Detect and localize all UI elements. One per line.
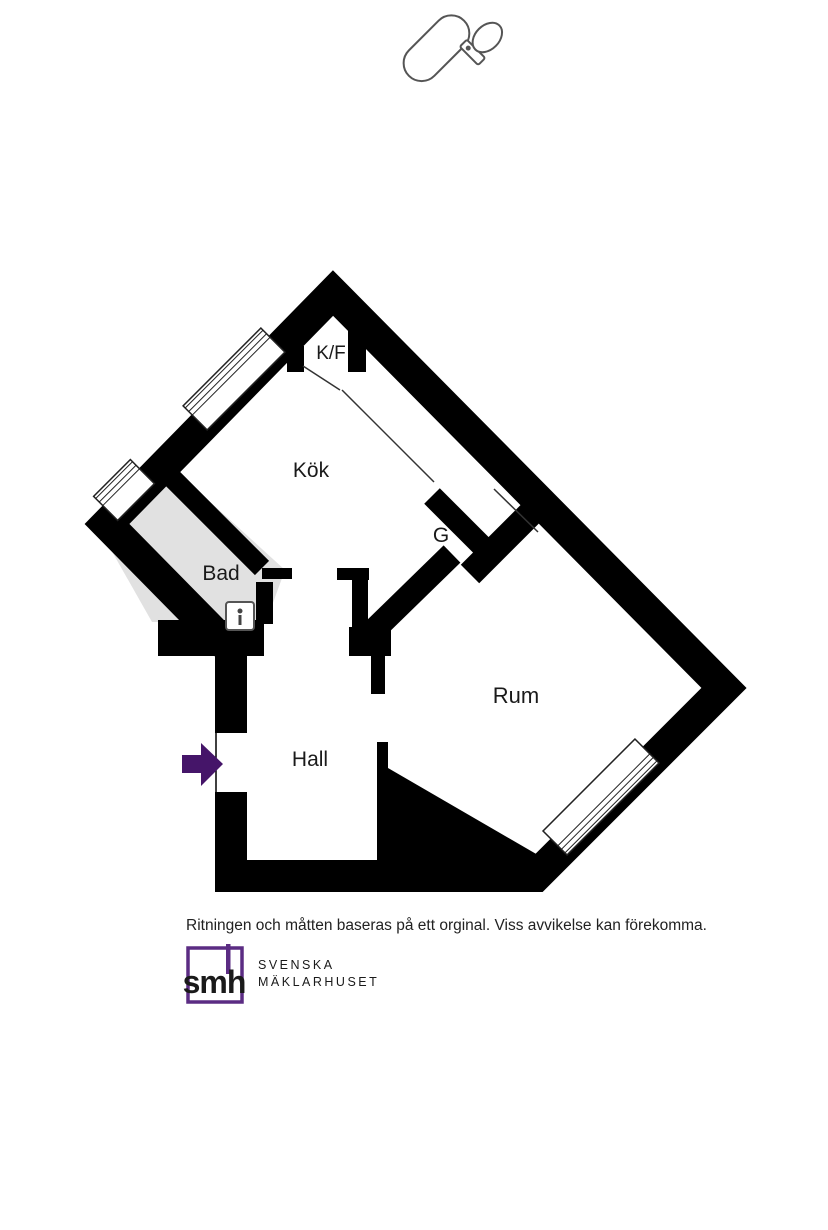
brand-abbr-text: smh — [183, 964, 246, 1000]
wall-bad-door-jamb — [262, 568, 292, 579]
wall-kf-right — [348, 329, 366, 372]
label-kf: K/F — [316, 343, 346, 364]
disclaimer-text: Ritningen och måtten baseras på ett orgi… — [186, 917, 707, 934]
wall-bad-east — [256, 582, 273, 624]
label-kok: Kök — [293, 459, 330, 482]
brand-name-line1: SVENSKA — [258, 958, 335, 972]
label-bad: Bad — [202, 562, 239, 585]
hand-basin — [226, 602, 254, 630]
brand-logo: smh SVENSKA MÄKLARHUSET — [183, 944, 380, 1002]
floorplan-canvas: K/F Kök G Bad Rum Hall Ritningen och måt… — [0, 0, 828, 1230]
label-hall: Hall — [292, 748, 328, 771]
wall-hall-rum — [377, 742, 388, 862]
label-rum: Rum — [493, 683, 539, 708]
label-g: G — [433, 524, 449, 547]
brand-name-line2: MÄKLARHUSET — [258, 975, 379, 989]
wall-kf-left-jamb — [287, 346, 304, 372]
wall-corridor-top — [337, 568, 369, 580]
wall-corridor-stub — [371, 656, 385, 694]
floorplan-page: K/F Kök G Bad Rum Hall Ritningen och måt… — [0, 0, 828, 1230]
